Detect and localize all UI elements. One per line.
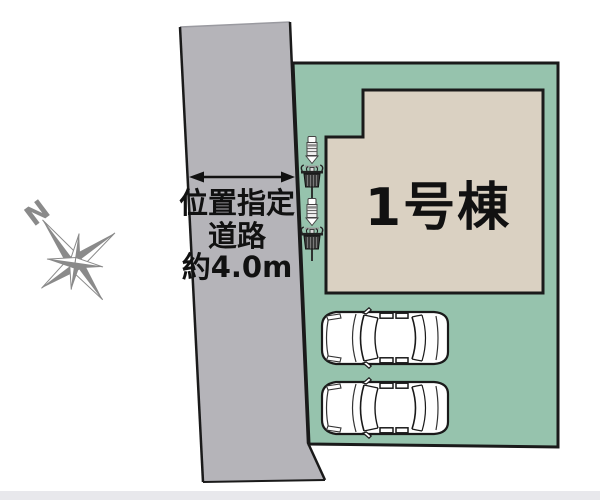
road-label-line1: 位置指定 [179,186,295,220]
road-label-line2: 道路 [208,219,267,253]
car-icon [322,378,448,438]
road-label-line3: 約4.0m [182,250,293,284]
building-label: 1号棟 [365,178,511,238]
site-plan-canvas: 1号棟 位置指定 道路 約4.0m N [0,0,600,500]
car-icon [322,308,448,368]
site-plan-page: 1号棟 位置指定 道路 約4.0m N [0,0,600,500]
bottom-border-bar [0,491,600,500]
